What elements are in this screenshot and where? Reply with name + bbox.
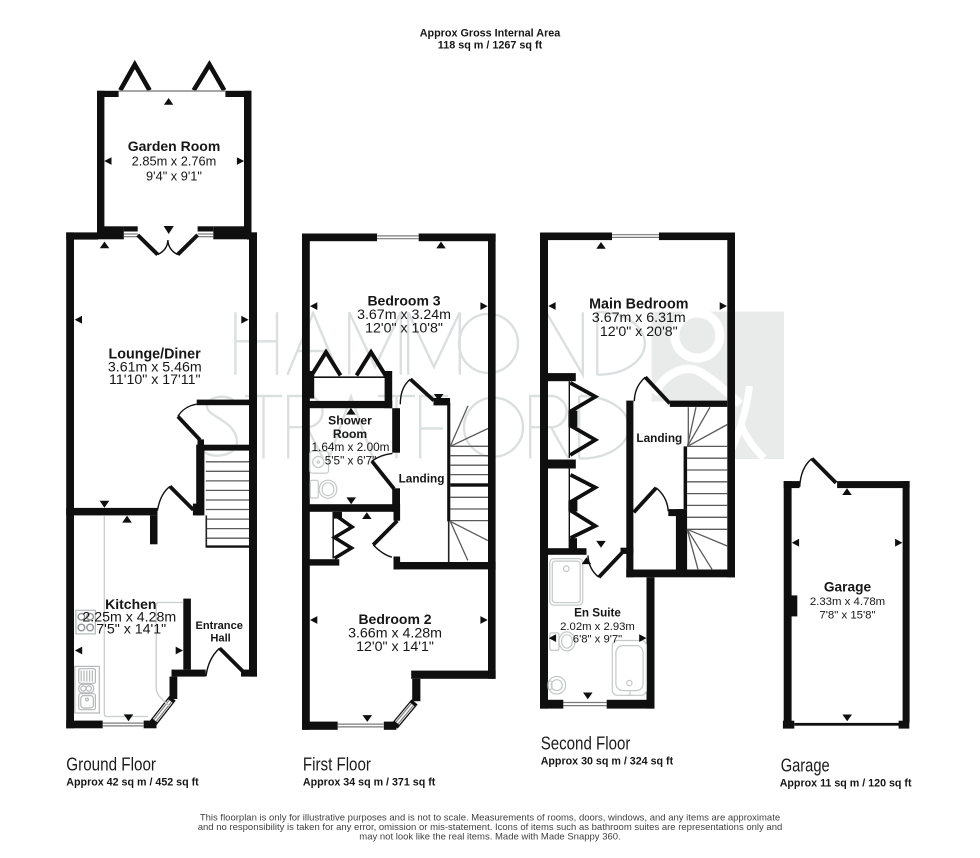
- svg-text:First Floor: First Floor: [303, 754, 371, 775]
- svg-text:Approx 34 sq m / 371 sq ft: Approx 34 sq m / 371 sq ft: [303, 777, 436, 789]
- svg-text:Garage: Garage: [781, 754, 830, 775]
- svg-text:Shower: Shower: [328, 414, 372, 428]
- svg-text:12'0" x 10'8": 12'0" x 10'8": [365, 320, 443, 336]
- svg-text:11'10" x 17'11": 11'10" x 17'11": [109, 372, 200, 388]
- svg-text:6'8" x 9'7": 6'8" x 9'7": [573, 634, 622, 646]
- svg-text:Landing: Landing: [399, 471, 445, 485]
- svg-text:Approx Gross Internal Area: Approx Gross Internal Area: [420, 27, 562, 39]
- svg-text:Approx 42 sq m / 452 sq ft: Approx 42 sq m / 452 sq ft: [66, 777, 199, 789]
- svg-text:7'5" x 14'1": 7'5" x 14'1": [96, 621, 166, 637]
- svg-text:may not look like the real ite: may not look like the real items. Made w…: [359, 831, 620, 842]
- svg-text:En Suite: En Suite: [574, 607, 621, 620]
- svg-text:Ground Floor: Ground Floor: [66, 754, 156, 775]
- svg-text:Entrance: Entrance: [195, 620, 242, 632]
- svg-text:12'0" x 20'8": 12'0" x 20'8": [600, 324, 678, 340]
- svg-text:Approx 30 sq m / 324 sq ft: Approx 30 sq m / 324 sq ft: [541, 756, 674, 768]
- svg-text:Room: Room: [333, 427, 367, 441]
- svg-text:2.85m x 2.76m: 2.85m x 2.76m: [132, 154, 217, 169]
- svg-text:9'4" x 9'1": 9'4" x 9'1": [146, 168, 202, 183]
- svg-text:Hall: Hall: [210, 632, 230, 644]
- svg-text:Garden Room: Garden Room: [128, 138, 221, 154]
- svg-text:2.33m x 4.78m: 2.33m x 4.78m: [810, 596, 885, 608]
- svg-text:Landing: Landing: [636, 431, 682, 445]
- svg-text:Garage: Garage: [824, 579, 872, 594]
- svg-text:Approx 11 sq m / 120 sq ft: Approx 11 sq m / 120 sq ft: [780, 778, 912, 790]
- svg-text:7'8" x 15'8": 7'8" x 15'8": [819, 609, 875, 621]
- svg-text:1.64m x 2.00m: 1.64m x 2.00m: [311, 440, 389, 454]
- svg-text:12'0" x 14'1": 12'0" x 14'1": [356, 639, 434, 655]
- svg-text:Second Floor: Second Floor: [541, 733, 631, 754]
- svg-text:118 sq m / 1267 sq ft: 118 sq m / 1267 sq ft: [438, 40, 543, 52]
- svg-text:Bedroom 2: Bedroom 2: [358, 611, 431, 627]
- svg-text:5'5" x 6'7": 5'5" x 6'7": [325, 453, 377, 467]
- svg-text:2.02m x 2.93m: 2.02m x 2.93m: [560, 621, 635, 633]
